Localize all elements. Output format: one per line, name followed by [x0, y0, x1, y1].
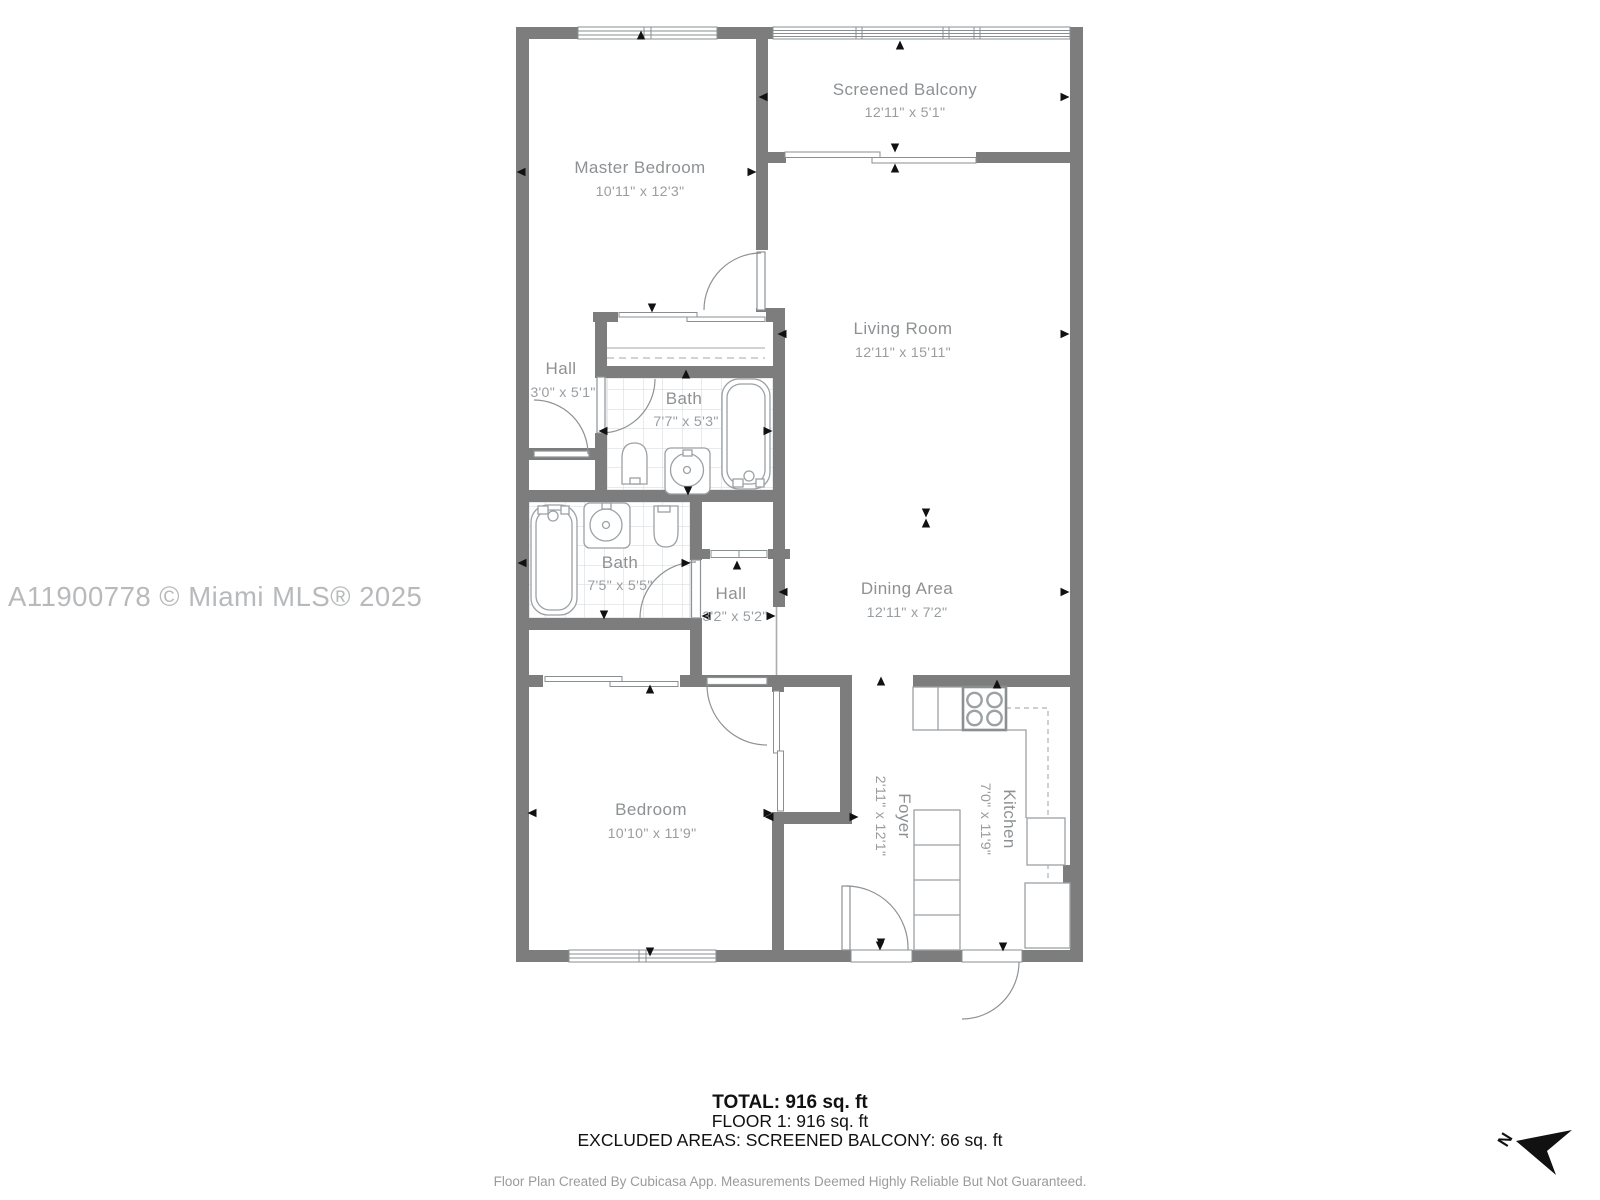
sliding-door-bedroom-closet [543, 675, 680, 687]
room-name: Hall [546, 359, 577, 378]
sliding-door-bedroom-side-closet [772, 691, 784, 812]
room-name: Hall [716, 584, 747, 603]
summary-floor: FLOOR 1: 916 sq. ft [712, 1111, 869, 1131]
north-arrow-icon [1516, 1130, 1572, 1175]
area-summary: TOTAL: 916 sq. ft FLOOR 1: 916 sq. ft EX… [577, 1092, 1002, 1150]
floor-plan: A11900778 © Miami MLS® 2025 [0, 0, 1600, 1200]
door-bedroom [707, 678, 767, 746]
sliding-door-balcony [785, 152, 976, 163]
room-label-screened-balcony: Screened Balcony 12'11" x 5'1" [833, 80, 977, 121]
room-dims: 12'11" x 15'11" [855, 345, 951, 361]
summary-excluded: EXCLUDED AREAS: SCREENED BALCONY: 66 sq.… [577, 1130, 1002, 1150]
room-dims: 10'10" x 11'9" [608, 826, 697, 842]
door-service-exterior [962, 962, 1019, 1019]
door-entry [842, 886, 908, 950]
room-name: Living Room [854, 319, 953, 338]
stove [963, 687, 1006, 730]
room-dims: 2'11" x 12'1" [872, 776, 888, 857]
wall-right [1070, 27, 1083, 962]
toilet-upper-bath [622, 443, 647, 484]
room-name: Bath [602, 553, 639, 572]
window-bedroom [569, 950, 716, 962]
room-label-dining-area: Dining Area 12'11" x 7'2" [861, 579, 953, 621]
window-screened-balcony [773, 27, 1070, 39]
bifold-door-hall-closet [710, 549, 768, 559]
refrigerator [1025, 883, 1070, 948]
summary-total: TOTAL: 916 sq. ft [712, 1092, 868, 1113]
toilet-lower-bath [654, 506, 678, 547]
pantry-cabinets [914, 810, 960, 950]
footer-disclaimer: Floor Plan Created By Cubicasa App. Meas… [494, 1174, 1087, 1189]
kitchen-counter-right [1027, 818, 1065, 865]
entry-door-threshold [851, 950, 912, 962]
room-name: Bedroom [615, 800, 687, 819]
door-master-bedroom [704, 252, 765, 310]
room-label-living-room: Living Room 12'11" x 15'11" [854, 319, 953, 361]
closet-rod-lines [607, 348, 765, 358]
room-dims: 7'7" x 5'3" [653, 414, 718, 430]
room-dims: 7'5" x 5'5" [587, 578, 652, 594]
room-name: Kitchen [1000, 789, 1019, 849]
room-label-master-bedroom: Master Bedroom 10'11" x 12'3" [574, 158, 705, 200]
room-dims: 7'0" x 11'9" [977, 783, 993, 855]
room-name: Foyer [895, 793, 914, 838]
room-dims: 3'0" x 5'1" [530, 385, 595, 401]
room-dims: 12'11" x 5'1" [865, 105, 946, 121]
room-label-bedroom: Bedroom 10'10" x 11'9" [608, 800, 697, 842]
service-door-threshold [962, 950, 1022, 962]
room-label-foyer: Foyer 2'11" x 12'1" [872, 776, 914, 857]
window-master-bedroom [578, 27, 717, 39]
room-label-hall-upper: Hall 3'0" x 5'1" [530, 359, 595, 401]
room-label-kitchen: Kitchen 7'0" x 11'9" [977, 783, 1019, 855]
room-label-hall-lower: Hall 3'2" x 5'2" [702, 584, 767, 625]
room-name: Master Bedroom [574, 158, 705, 177]
compass-north-label: N [1494, 1130, 1517, 1150]
bathtub-upper-bath [722, 379, 770, 489]
room-dims: 3'2" x 5'2" [702, 609, 767, 625]
sink-lower-bath [584, 503, 630, 548]
bathtub-lower-bath [531, 505, 577, 615]
sliding-door-master-closet [618, 312, 766, 322]
room-dims: 12'11" x 7'2" [867, 605, 948, 621]
room-dims: 10'11" x 12'3" [596, 184, 685, 200]
room-name: Screened Balcony [833, 80, 977, 99]
watermark: A11900778 © Miami MLS® 2025 [8, 581, 422, 612]
room-name: Bath [666, 389, 703, 408]
floor-plan-page: A11900778 © Miami MLS® 2025 [0, 0, 1600, 1200]
room-name: Dining Area [861, 579, 953, 598]
compass: N [1494, 1130, 1572, 1175]
